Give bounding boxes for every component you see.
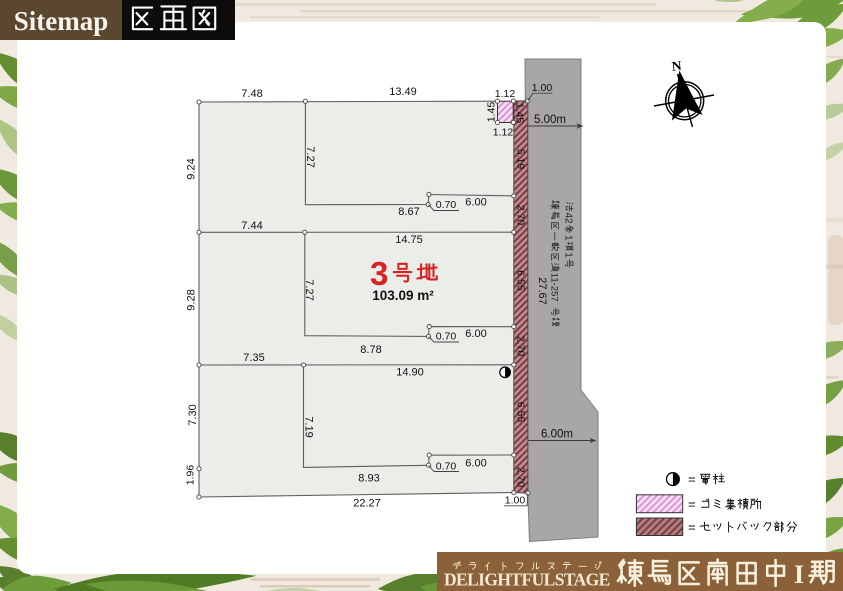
svg-text:0.70: 0.70: [436, 461, 457, 473]
svg-text:=: =: [688, 520, 696, 535]
svg-text:5.19: 5.19: [514, 149, 526, 170]
svg-text:3: 3: [370, 255, 388, 292]
svg-text:6.00: 6.00: [465, 458, 486, 470]
svg-text:7.19: 7.19: [303, 416, 315, 437]
svg-text:11-257: 11-257: [549, 273, 560, 302]
svg-text:7.44: 7.44: [241, 220, 262, 232]
svg-text:8.67: 8.67: [398, 206, 419, 218]
svg-text:6.55: 6.55: [514, 402, 526, 423]
svg-text:7.48: 7.48: [241, 88, 262, 100]
svg-text:1.00: 1.00: [505, 495, 526, 507]
svg-text:27.67: 27.67: [536, 277, 548, 305]
svg-text:6.00: 6.00: [465, 328, 486, 340]
svg-text:1.12: 1.12: [493, 127, 514, 139]
svg-text:13.49: 13.49: [389, 86, 417, 98]
svg-text:6.55: 6.55: [514, 270, 526, 291]
svg-text:N: N: [671, 58, 683, 74]
svg-text:1.96: 1.96: [185, 465, 197, 486]
svg-text:6.00: 6.00: [465, 197, 486, 209]
svg-text:DELIGHTFULSTAGE: DELIGHTFULSTAGE: [444, 570, 610, 590]
svg-text:14.90: 14.90: [396, 367, 424, 379]
svg-text:=: =: [688, 472, 696, 487]
svg-text:1.45: 1.45: [514, 103, 526, 124]
svg-text:7.35: 7.35: [243, 352, 264, 364]
svg-text:I: I: [794, 560, 804, 589]
svg-text:1.12: 1.12: [495, 88, 516, 100]
svg-text:7.27: 7.27: [304, 146, 316, 167]
svg-text:2.70: 2.70: [514, 205, 526, 226]
svg-text:1.00: 1.00: [532, 82, 553, 94]
svg-text:42: 42: [562, 213, 573, 225]
svg-text:8.93: 8.93: [358, 473, 379, 485]
svg-text:8.78: 8.78: [360, 344, 381, 356]
svg-text:0.70: 0.70: [436, 199, 457, 211]
svg-text:7.30: 7.30: [187, 404, 199, 425]
svg-text:7.27: 7.27: [303, 279, 315, 300]
svg-text:2.70: 2.70: [514, 336, 526, 357]
svg-text:103.09 m²: 103.09 m²: [372, 288, 434, 303]
svg-text:5.00m: 5.00m: [534, 114, 566, 126]
svg-text:0.70: 0.70: [436, 331, 457, 343]
svg-text:1: 1: [562, 252, 573, 258]
svg-text:14.75: 14.75: [395, 234, 423, 246]
svg-text:1.45: 1.45: [486, 102, 498, 123]
svg-text:9.28: 9.28: [185, 289, 197, 310]
svg-text:2.70: 2.70: [514, 467, 526, 488]
svg-text:=: =: [688, 497, 696, 512]
svg-text:1: 1: [562, 235, 573, 241]
svg-text:22.27: 22.27: [353, 498, 381, 510]
svg-text:Sitemap: Sitemap: [14, 6, 109, 36]
svg-text:6.00m: 6.00m: [541, 429, 573, 441]
svg-text:9.24: 9.24: [185, 158, 197, 179]
